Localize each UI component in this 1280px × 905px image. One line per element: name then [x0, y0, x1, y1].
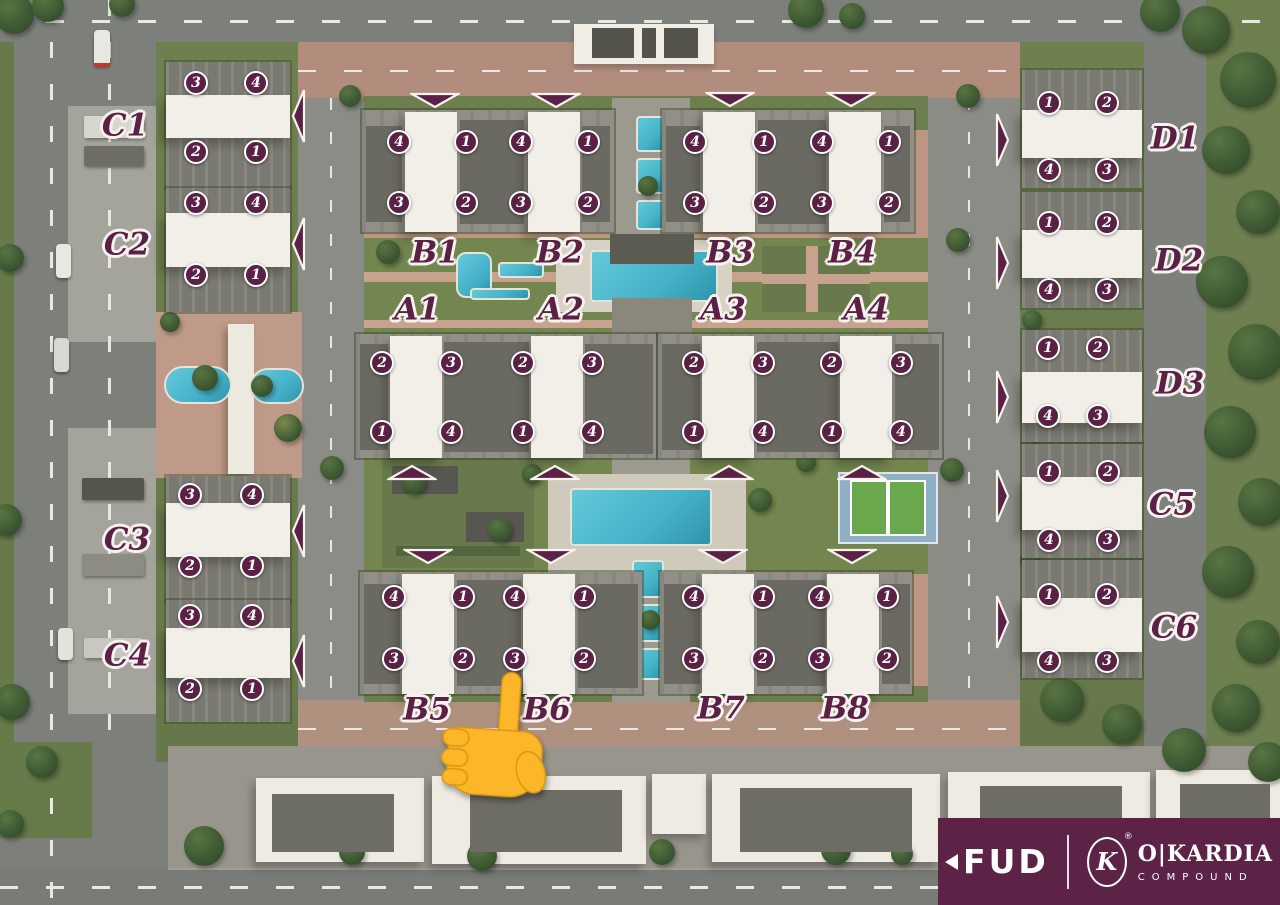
unit-marker-a2[interactable]: 2 — [511, 351, 535, 375]
unit-marker-b4[interactable]: 4 — [810, 130, 834, 154]
building-b8[interactable] — [827, 574, 879, 694]
tree — [376, 240, 400, 264]
unit-marker-d1[interactable]: 1 — [1037, 91, 1061, 115]
tennis-court — [850, 480, 926, 536]
unit-marker-c5[interactable]: 2 — [1096, 460, 1120, 484]
lane-line — [968, 98, 970, 702]
tree — [1162, 728, 1206, 772]
entrance-arrow-down-b8 — [827, 548, 877, 565]
building-label-b1[interactable]: B1 — [411, 238, 459, 269]
entrance-arrow-down-b6 — [526, 548, 576, 565]
unit-marker-c6[interactable]: 3 — [1095, 649, 1119, 673]
tree — [1212, 684, 1260, 732]
building-c4[interactable] — [166, 628, 290, 678]
tree — [1182, 6, 1230, 54]
car — [54, 338, 69, 372]
tree — [1220, 52, 1276, 108]
unit-marker-c5[interactable]: 3 — [1096, 528, 1120, 552]
tree — [1040, 678, 1084, 722]
unit-marker-b4[interactable]: 3 — [810, 191, 834, 215]
tree — [638, 176, 658, 196]
water-feature — [470, 288, 530, 300]
building-c5[interactable] — [1022, 477, 1142, 530]
unit-marker-a4[interactable]: 4 — [889, 420, 913, 444]
unit-marker-d2[interactable]: 3 — [1095, 278, 1119, 302]
unit-marker-b4[interactable]: 2 — [877, 191, 901, 215]
building-b7[interactable] — [702, 574, 754, 694]
car — [56, 244, 71, 278]
unit-marker-c2[interactable]: 3 — [184, 191, 208, 215]
unit-marker-c1[interactable]: 1 — [244, 140, 268, 164]
tree — [251, 375, 273, 397]
unit-marker-c6[interactable]: 4 — [1037, 649, 1061, 673]
building-label-c3[interactable]: C3 — [104, 525, 150, 556]
tree — [192, 365, 218, 391]
unit-marker-b5[interactable]: 4 — [382, 585, 406, 609]
unit-marker-a1[interactable]: 4 — [439, 420, 463, 444]
unit-marker-b2[interactable]: 3 — [509, 191, 533, 215]
unit-marker-c4[interactable]: 2 — [178, 677, 202, 701]
okardia-text: O|KARDIA COMPOUND — [1138, 841, 1273, 883]
unit-marker-a2[interactable]: 4 — [580, 420, 604, 444]
tree — [1238, 478, 1280, 526]
tree — [339, 85, 361, 107]
gate-slot — [642, 28, 656, 58]
building-a1[interactable] — [390, 336, 442, 458]
car — [94, 30, 110, 66]
unit-marker-d2[interactable]: 2 — [1095, 211, 1119, 235]
entrance-arrow-up-a4 — [837, 464, 887, 481]
tree — [1102, 704, 1142, 744]
unit-marker-d1[interactable]: 2 — [1095, 91, 1119, 115]
okardia-monogram-letter: K — [1096, 847, 1117, 876]
okardia-subtitle: COMPOUND — [1138, 872, 1273, 883]
unit-marker-c3[interactable]: 1 — [240, 554, 264, 578]
building-label-a4[interactable]: A4 — [843, 295, 889, 326]
tree — [649, 839, 675, 865]
building-label-d2[interactable]: D2 — [1155, 246, 1203, 277]
tree — [748, 488, 772, 512]
tree — [184, 826, 224, 866]
unit-marker-c1[interactable]: 4 — [244, 71, 268, 95]
entrance-arrow-down-b7 — [698, 548, 748, 565]
building-label-a3[interactable]: A3 — [700, 295, 746, 326]
compound-master-plan: 3421C13421C23421C33421C44132B14132B24132… — [0, 0, 1280, 905]
registered-mark: ® — [1124, 832, 1133, 842]
building-b1[interactable] — [405, 112, 457, 232]
logo-divider — [1067, 835, 1069, 889]
unit-marker-c2[interactable]: 1 — [244, 263, 268, 287]
developer-logo-banner: FUD K ® O|KARDIA COMPOUND — [938, 818, 1280, 905]
building-label-b8[interactable]: B8 — [821, 694, 869, 725]
entrance-arrow-right-d2 — [995, 235, 1010, 291]
entrance-arrow-down-b5 — [403, 548, 453, 565]
entrance-arrow-left-c2 — [291, 216, 306, 272]
unit-marker-a2[interactable]: 3 — [580, 351, 604, 375]
building-label-b7[interactable]: B7 — [697, 694, 745, 725]
tree — [1204, 406, 1256, 458]
building-b2[interactable] — [528, 112, 580, 232]
tree — [1202, 546, 1254, 598]
unit-marker-b3[interactable]: 2 — [752, 191, 776, 215]
parked-vehicle — [84, 146, 144, 166]
building-label-d3[interactable]: D3 — [1156, 369, 1204, 400]
tree — [1022, 310, 1042, 330]
unit-marker-b1[interactable]: 3 — [387, 191, 411, 215]
unit-marker-a3[interactable]: 3 — [751, 351, 775, 375]
building-a4[interactable] — [840, 336, 892, 458]
unit-marker-b5[interactable]: 3 — [382, 647, 406, 671]
unit-marker-c5[interactable]: 4 — [1037, 528, 1061, 552]
commercial-roof — [272, 794, 394, 852]
unit-marker-b3[interactable]: 1 — [752, 130, 776, 154]
entrance-arrow-left-c3 — [291, 503, 306, 559]
unit-marker-c3[interactable]: 3 — [178, 483, 202, 507]
tree — [1248, 742, 1280, 782]
unit-marker-c2[interactable]: 4 — [244, 191, 268, 215]
tree — [320, 456, 344, 480]
building-d1[interactable] — [1022, 110, 1142, 158]
unit-marker-b8[interactable]: 3 — [808, 647, 832, 671]
unit-marker-c4[interactable]: 1 — [240, 677, 264, 701]
unit-marker-b2[interactable]: 2 — [576, 191, 600, 215]
building-label-c4[interactable]: C4 — [104, 641, 150, 672]
entrance-arrow-left-c4 — [291, 633, 306, 689]
building-label-c6[interactable]: C6 — [1151, 613, 1197, 644]
tree — [1228, 324, 1280, 380]
car-taillights — [94, 63, 110, 67]
building-label-c1[interactable]: C1 — [102, 111, 148, 142]
unit-marker-a4[interactable]: 1 — [820, 420, 844, 444]
entrance-arrow-right-d1 — [995, 112, 1010, 168]
unit-marker-b2[interactable]: 1 — [576, 130, 600, 154]
tree — [940, 458, 964, 482]
fud-triangle-icon — [945, 854, 958, 870]
gate-slot — [664, 28, 698, 58]
entrance-arrow-right-c5 — [995, 468, 1010, 524]
building-label-b3[interactable]: B3 — [706, 238, 754, 269]
tree — [1236, 190, 1280, 234]
building-a3[interactable] — [702, 336, 754, 458]
building-c6[interactable] — [1022, 598, 1142, 652]
unit-marker-c3[interactable]: 4 — [240, 483, 264, 507]
building-label-d1[interactable]: D1 — [1151, 124, 1199, 155]
parked-vehicle — [82, 478, 144, 500]
unit-marker-b8[interactable]: 1 — [875, 585, 899, 609]
unit-marker-b7[interactable]: 3 — [682, 647, 706, 671]
building-label-c2[interactable]: C2 — [104, 230, 150, 261]
commercial-roof — [740, 788, 912, 852]
lane-line — [298, 70, 1020, 72]
unit-marker-b1[interactable]: 2 — [454, 191, 478, 215]
garden-path — [762, 274, 870, 284]
building-b3[interactable] — [703, 112, 755, 232]
unit-marker-b3[interactable]: 3 — [683, 191, 707, 215]
unit-marker-b8[interactable]: 4 — [808, 585, 832, 609]
building-label-b2[interactable]: B2 — [536, 238, 584, 269]
entrance-arrow-left-c1 — [291, 88, 306, 144]
lane-line — [298, 728, 1020, 730]
unit-marker-d1[interactable]: 4 — [1037, 158, 1061, 182]
grass-verge — [0, 42, 14, 742]
unit-marker-a2[interactable]: 1 — [511, 420, 535, 444]
entrance-arrow-up-a3 — [704, 464, 754, 481]
unit-marker-b7[interactable]: 1 — [751, 585, 775, 609]
tree — [274, 414, 302, 442]
car — [58, 628, 73, 660]
unit-marker-b1[interactable]: 4 — [387, 130, 411, 154]
unit-marker-c2[interactable]: 2 — [184, 263, 208, 287]
okardia-name: O|KARDIA — [1138, 841, 1273, 867]
gate-slot — [592, 28, 634, 58]
unit-marker-b2[interactable]: 4 — [509, 130, 533, 154]
unit-marker-c1[interactable]: 2 — [184, 140, 208, 164]
tree — [956, 84, 980, 108]
unit-marker-b7[interactable]: 4 — [682, 585, 706, 609]
fud-logo-text: FUD — [963, 842, 1049, 881]
unit-marker-c6[interactable]: 2 — [1095, 583, 1119, 607]
tree — [1236, 620, 1280, 664]
entrance-arrow-down-b3 — [705, 91, 755, 108]
unit-marker-a1[interactable]: 2 — [370, 351, 394, 375]
building-label-c5[interactable]: C5 — [1149, 490, 1195, 521]
unit-marker-c1[interactable]: 3 — [184, 71, 208, 95]
building-c1[interactable] — [166, 95, 290, 138]
unit-marker-a3[interactable]: 4 — [751, 420, 775, 444]
entrance-arrow-up-a1 — [387, 464, 437, 481]
pointer-finger-icon — [436, 666, 563, 812]
tree — [26, 746, 58, 778]
entrance-arrow-up-a2 — [530, 464, 580, 481]
tree — [839, 3, 865, 29]
tree — [1202, 126, 1250, 174]
unit-marker-b3[interactable]: 4 — [683, 130, 707, 154]
unit-marker-d2[interactable]: 4 — [1037, 278, 1061, 302]
unit-marker-b6[interactable]: 3 — [503, 647, 527, 671]
lane-line — [0, 20, 1280, 23]
unit-marker-b7[interactable]: 2 — [751, 647, 775, 671]
unit-marker-d1[interactable]: 3 — [1095, 158, 1119, 182]
unit-marker-c4[interactable]: 4 — [240, 604, 264, 628]
tree — [1196, 256, 1248, 308]
unit-marker-b5[interactable]: 1 — [451, 585, 475, 609]
unit-marker-c4[interactable]: 3 — [178, 604, 202, 628]
unit-marker-d3[interactable]: 3 — [1086, 404, 1110, 428]
entrance-arrow-down-b2 — [531, 92, 581, 109]
unit-marker-a1[interactable]: 1 — [370, 420, 394, 444]
plaza-structure — [612, 298, 692, 338]
entrance-arrow-down-b1 — [410, 92, 460, 109]
entrance-arrow-right-c6 — [995, 594, 1010, 650]
tree — [160, 312, 180, 332]
unit-marker-d3[interactable]: 1 — [1036, 336, 1060, 360]
unit-marker-d2[interactable]: 1 — [1037, 211, 1061, 235]
building-c3[interactable] — [166, 503, 290, 557]
unit-marker-c3[interactable]: 2 — [178, 554, 202, 578]
entrance-arrow-down-b4 — [826, 91, 876, 108]
unit-marker-b1[interactable]: 1 — [454, 130, 478, 154]
building-label-a2[interactable]: A2 — [538, 295, 584, 326]
unit-marker-b6[interactable]: 1 — [572, 585, 596, 609]
unit-marker-c5[interactable]: 1 — [1037, 460, 1061, 484]
okardia-logo: K ® O|KARDIA COMPOUND — [1087, 837, 1273, 887]
unit-marker-b6[interactable]: 4 — [503, 585, 527, 609]
entry-pavilion — [228, 324, 254, 474]
unit-marker-b6[interactable]: 2 — [572, 647, 596, 671]
unit-marker-a1[interactable]: 3 — [439, 351, 463, 375]
building-b4[interactable] — [829, 112, 881, 232]
building-d2[interactable] — [1022, 230, 1142, 278]
main-swimming-pool — [570, 488, 712, 546]
tree — [488, 518, 512, 542]
building-c2[interactable] — [166, 213, 290, 267]
building-label-a1[interactable]: A1 — [394, 295, 440, 326]
building-label-b4[interactable]: B4 — [828, 238, 876, 269]
fud-logo: FUD — [945, 842, 1049, 881]
unit-marker-a4[interactable]: 2 — [820, 351, 844, 375]
unit-marker-c6[interactable]: 1 — [1037, 583, 1061, 607]
unit-marker-a4[interactable]: 3 — [889, 351, 913, 375]
tree — [946, 228, 970, 252]
entrance-arrow-right-d3 — [995, 369, 1010, 425]
pergola — [610, 234, 694, 264]
lane-line — [330, 98, 332, 702]
building-a2[interactable] — [531, 336, 583, 458]
unit-marker-d3[interactable]: 4 — [1036, 404, 1060, 428]
commercial-building — [652, 774, 706, 834]
unit-marker-b8[interactable]: 2 — [875, 647, 899, 671]
unit-marker-b4[interactable]: 1 — [877, 130, 901, 154]
unit-marker-a3[interactable]: 2 — [682, 351, 706, 375]
tree — [640, 610, 660, 630]
okardia-monogram-icon: K ® — [1087, 837, 1127, 887]
unit-marker-d3[interactable]: 2 — [1086, 336, 1110, 360]
unit-marker-a3[interactable]: 1 — [682, 420, 706, 444]
